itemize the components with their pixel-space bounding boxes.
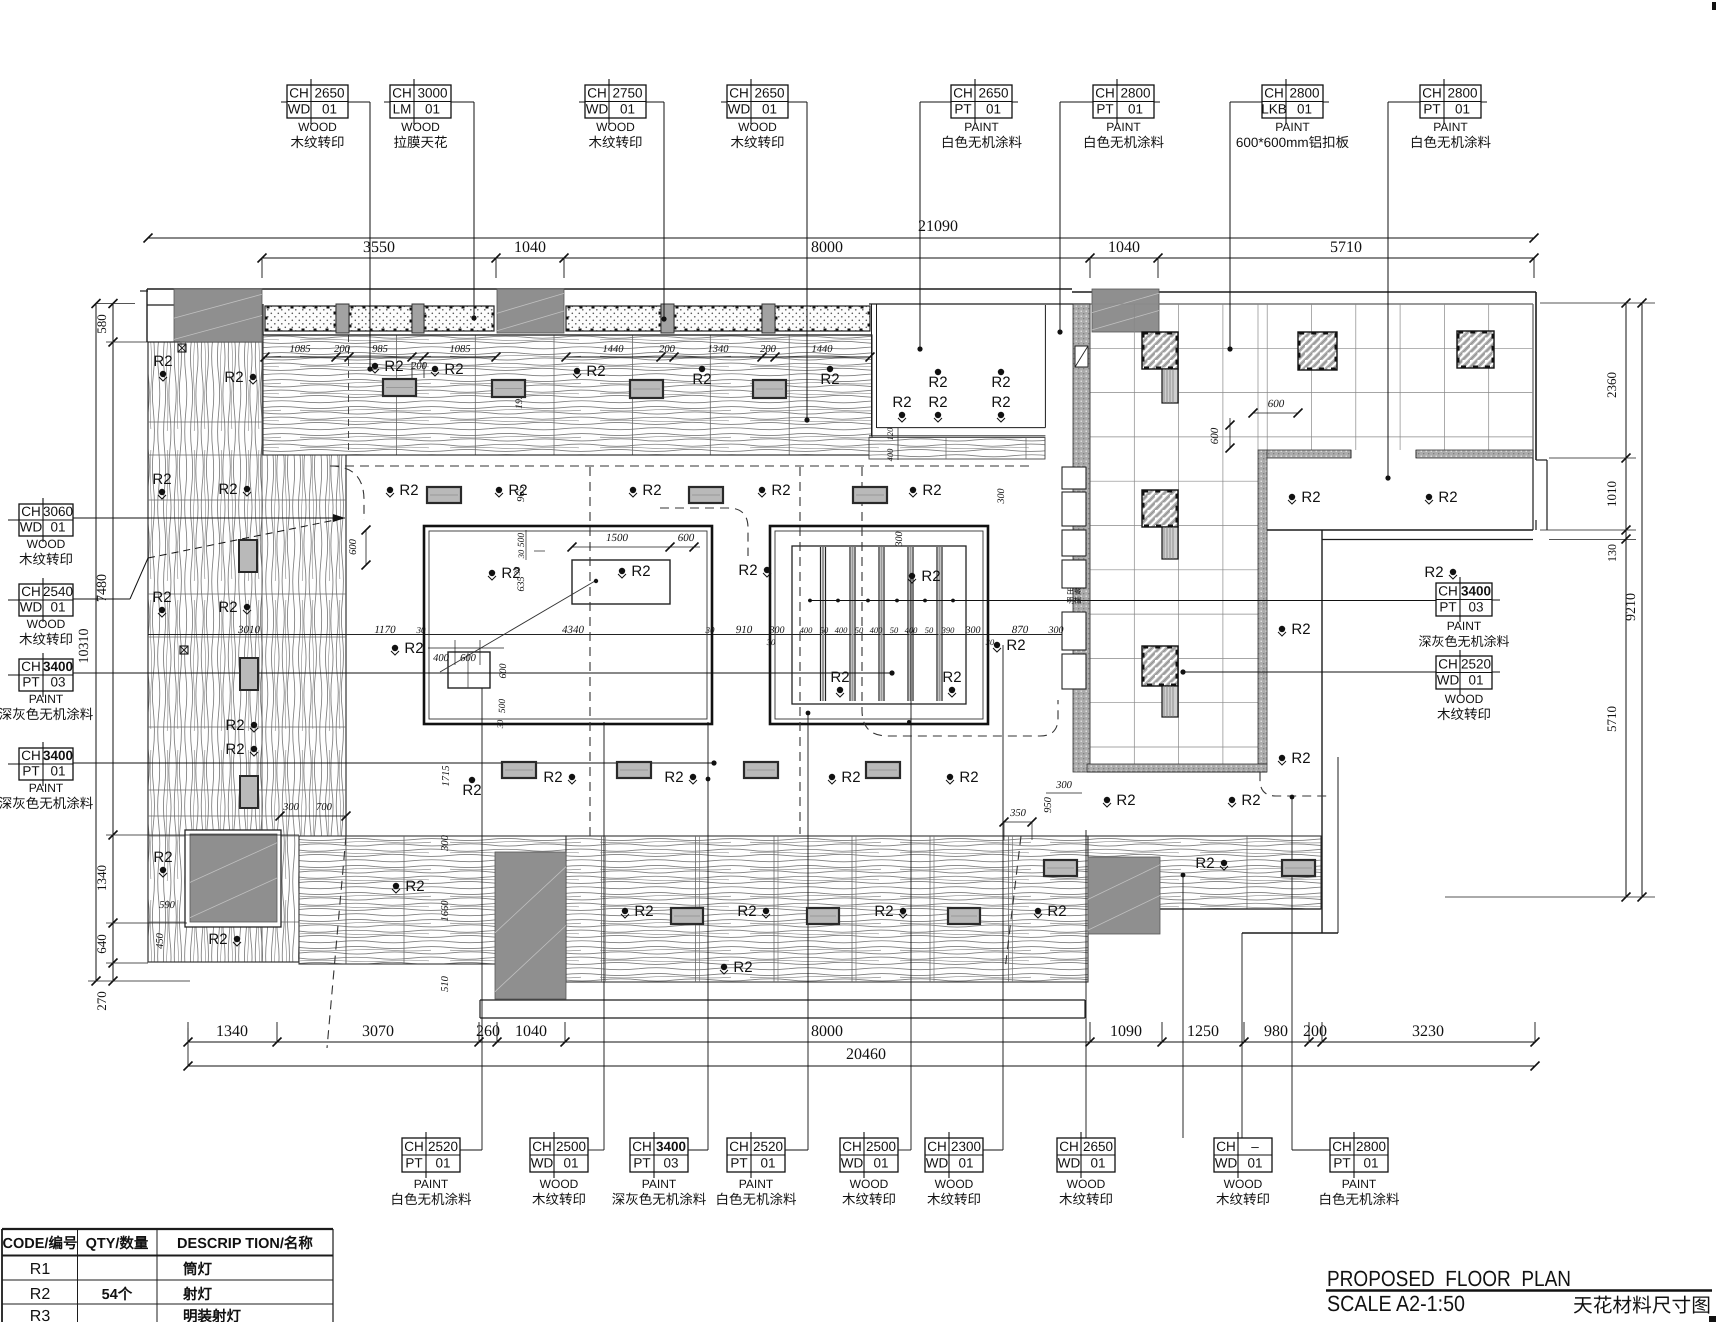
svg-text:木纹转印: 木纹转印 (589, 135, 643, 150)
svg-text:PT: PT (22, 675, 39, 690)
svg-text:600: 600 (678, 532, 695, 544)
svg-text:WOOD: WOOD (1224, 1177, 1263, 1191)
svg-text:3550: 3550 (363, 239, 395, 256)
svg-text:1170: 1170 (374, 624, 396, 636)
svg-text:600*600mm铝扣板: 600*600mm铝扣板 (1236, 135, 1350, 150)
svg-text:R2: R2 (1116, 792, 1135, 809)
svg-text:R2: R2 (928, 374, 947, 391)
svg-text:2650: 2650 (754, 86, 784, 101)
svg-text:1250: 1250 (1187, 1023, 1219, 1040)
svg-text:R2: R2 (991, 374, 1010, 391)
svg-text:120: 120 (885, 427, 895, 441)
svg-text:R2: R2 (771, 482, 790, 499)
svg-text:2500: 2500 (866, 1139, 896, 1154)
svg-text:CH: CH (1332, 1139, 1352, 1154)
svg-text:2650: 2650 (978, 86, 1008, 101)
svg-text:WD: WD (20, 600, 43, 615)
svg-text:CH: CH (927, 1139, 947, 1154)
svg-text:1085: 1085 (450, 344, 471, 355)
svg-text:2500: 2500 (556, 1139, 586, 1154)
svg-text:木纹转印: 木纹转印 (842, 1192, 896, 1207)
svg-text:R2: R2 (892, 394, 911, 411)
svg-text:WD: WD (926, 1156, 949, 1171)
svg-text:白色无机涂料: 白色无机涂料 (391, 1192, 472, 1207)
svg-text:PAINT: PAINT (964, 120, 999, 134)
svg-text:R2: R2 (1291, 621, 1310, 638)
svg-text:R2: R2 (1006, 637, 1025, 654)
svg-text:PT: PT (22, 764, 39, 779)
svg-text:260: 260 (476, 1023, 500, 1040)
svg-text:30: 30 (705, 625, 716, 635)
svg-text:03: 03 (50, 675, 65, 690)
svg-text:CH: CH (729, 1139, 749, 1154)
svg-text:WOOD: WOOD (850, 1177, 889, 1191)
svg-text:01: 01 (620, 102, 635, 117)
svg-text:R2: R2 (733, 959, 752, 976)
svg-text:PT: PT (1423, 102, 1440, 117)
svg-text:01: 01 (873, 1156, 888, 1171)
svg-text:R2: R2 (384, 358, 403, 375)
svg-text:木纹转印: 木纹转印 (1059, 1192, 1113, 1207)
svg-text:5710: 5710 (1604, 706, 1619, 732)
svg-text:CH: CH (532, 1139, 552, 1154)
svg-text:CODE/编号: CODE/编号 (3, 1235, 78, 1252)
svg-text:PT: PT (1333, 1156, 1350, 1171)
svg-text:WOOD: WOOD (738, 120, 777, 134)
svg-text:R2: R2 (153, 353, 172, 370)
svg-text:580: 580 (94, 314, 109, 334)
svg-text:WD: WD (531, 1156, 554, 1171)
svg-text:PAINT: PAINT (414, 1177, 449, 1191)
svg-text:PT: PT (405, 1156, 422, 1171)
svg-text:2800: 2800 (1120, 86, 1150, 101)
svg-text:WOOD: WOOD (596, 120, 635, 134)
svg-text:1500: 1500 (606, 532, 629, 544)
svg-text:WD: WD (841, 1156, 864, 1171)
svg-text:射灯: 射灯 (182, 1286, 212, 1303)
svg-text:1010: 1010 (1604, 481, 1619, 507)
svg-text:深灰色无机涂料: 深灰色无机涂料 (612, 1192, 707, 1207)
svg-text:CH: CH (953, 86, 973, 101)
svg-text:–: – (1251, 1139, 1259, 1154)
svg-text:1040: 1040 (514, 239, 546, 256)
svg-text:350: 350 (1009, 808, 1027, 819)
svg-text:R2: R2 (820, 371, 839, 388)
svg-text:2800: 2800 (1447, 86, 1477, 101)
svg-text:PROPOSED FLOOR PLAN: PROPOSED FLOOR PLAN (1327, 1266, 1571, 1291)
svg-text:R2: R2 (152, 589, 171, 606)
svg-text:PAINT: PAINT (1433, 120, 1468, 134)
svg-text:50: 50 (855, 625, 864, 635)
svg-text:985: 985 (372, 344, 388, 355)
svg-text:CH: CH (632, 1139, 652, 1154)
svg-text:200: 200 (760, 344, 777, 355)
svg-text:600: 600 (1209, 427, 1221, 444)
svg-text:30: 30 (495, 719, 505, 729)
svg-text:CH: CH (729, 86, 749, 101)
svg-text:WOOD: WOOD (1445, 692, 1484, 706)
svg-text:R2: R2 (225, 741, 244, 758)
svg-text:640: 640 (94, 934, 109, 954)
svg-text:400: 400 (433, 653, 450, 664)
svg-text:R2: R2 (1301, 489, 1320, 506)
svg-text:R2: R2 (928, 394, 947, 411)
svg-text:R2: R2 (959, 769, 978, 786)
svg-text:CH: CH (392, 86, 412, 101)
svg-text:200: 200 (659, 344, 676, 355)
svg-text:300: 300 (965, 625, 981, 636)
svg-text:600: 600 (348, 538, 359, 555)
svg-text:R2: R2 (1047, 903, 1066, 920)
svg-text:01: 01 (435, 1156, 450, 1171)
svg-text:R2: R2 (225, 717, 244, 734)
svg-text:SCALE A2-1:50: SCALE A2-1:50 (1327, 1291, 1465, 1316)
svg-text:DESCRIP TION/名称: DESCRIP TION/名称 (177, 1235, 313, 1252)
svg-text:4340: 4340 (562, 624, 585, 636)
svg-text:R2: R2 (208, 931, 227, 948)
svg-text:200: 200 (411, 361, 428, 372)
svg-text:R2: R2 (922, 482, 941, 499)
svg-text:CH: CH (404, 1139, 424, 1154)
svg-text:400: 400 (835, 625, 849, 635)
svg-text:R3: R3 (30, 1308, 51, 1322)
svg-text:木纹转印: 木纹转印 (1216, 1192, 1270, 1207)
svg-text:870: 870 (1012, 624, 1029, 636)
svg-text:01: 01 (958, 1156, 973, 1171)
svg-text:1040: 1040 (1108, 239, 1140, 256)
svg-text:R2: R2 (874, 903, 893, 920)
svg-text:PT: PT (1096, 102, 1113, 117)
svg-text:白色无机涂料: 白色无机涂料 (1083, 135, 1164, 150)
svg-text:CH: CH (21, 748, 41, 763)
svg-text:1715: 1715 (441, 766, 452, 787)
svg-text:400: 400 (870, 625, 884, 635)
svg-text:木纹转印: 木纹转印 (731, 135, 785, 150)
svg-text:30: 30 (516, 549, 526, 559)
svg-text:7480: 7480 (95, 574, 110, 602)
svg-text:600: 600 (1268, 398, 1285, 410)
svg-text:CH: CH (21, 659, 41, 674)
svg-text:CH: CH (842, 1139, 862, 1154)
svg-text:1340: 1340 (94, 865, 109, 891)
svg-text:2520: 2520 (1461, 657, 1491, 672)
svg-text:01: 01 (1128, 102, 1143, 117)
svg-text:CH: CH (21, 584, 41, 599)
svg-text:30: 30 (416, 625, 427, 635)
svg-text:木纹转印: 木纹转印 (19, 632, 73, 647)
svg-text:50: 50 (820, 625, 829, 635)
svg-text:300: 300 (769, 625, 785, 636)
svg-text:WOOD: WOOD (298, 120, 337, 134)
svg-text:8000: 8000 (811, 239, 843, 256)
svg-text:天花材料尺寸图: 天花材料尺寸图 (1573, 1295, 1711, 1317)
svg-text:3400: 3400 (1461, 584, 1491, 599)
svg-text:深灰色无机涂料: 深灰色无机涂料 (0, 707, 94, 722)
svg-text:CH: CH (21, 504, 41, 519)
svg-text:21090: 21090 (918, 218, 958, 235)
svg-text:R2: R2 (921, 568, 940, 585)
svg-text:R1: R1 (30, 1261, 51, 1278)
svg-text:R2: R2 (631, 563, 650, 580)
svg-text:WD: WD (1437, 673, 1460, 688)
svg-text:130: 130 (1605, 544, 1619, 562)
svg-text:01: 01 (322, 102, 337, 117)
svg-text:2540: 2540 (43, 584, 73, 599)
svg-text:390: 390 (941, 625, 956, 635)
svg-text:木纹转印: 木纹转印 (1437, 707, 1491, 722)
svg-text:600: 600 (460, 653, 477, 664)
svg-text:CH: CH (1438, 584, 1458, 599)
svg-text:400: 400 (800, 625, 814, 635)
svg-text:LM: LM (393, 102, 412, 117)
svg-text:R2: R2 (737, 903, 756, 920)
svg-text:白色无机涂料: 白色无机涂料 (941, 135, 1022, 150)
svg-text:白色无机涂料: 白色无机涂料 (1410, 135, 1491, 150)
svg-text:2300: 2300 (951, 1139, 981, 1154)
svg-text:CH: CH (1059, 1139, 1079, 1154)
svg-text:PT: PT (1439, 600, 1456, 615)
svg-text:WOOD: WOOD (540, 1177, 579, 1191)
svg-text:1340: 1340 (216, 1023, 248, 1040)
svg-text:2520: 2520 (753, 1139, 783, 1154)
svg-text:03: 03 (663, 1156, 678, 1171)
svg-text:R2: R2 (224, 369, 243, 386)
svg-text:R2: R2 (543, 769, 562, 786)
svg-text:1660: 1660 (440, 900, 451, 922)
svg-text:白色无机涂料: 白色无机涂料 (1319, 1192, 1400, 1207)
svg-text:500: 500 (517, 533, 527, 548)
svg-text:WOOD: WOOD (1067, 1177, 1106, 1191)
svg-text:WD: WD (288, 102, 311, 117)
svg-text:9210: 9210 (1624, 593, 1639, 621)
svg-text:PAINT: PAINT (1447, 619, 1482, 633)
svg-text:30: 30 (985, 637, 995, 647)
svg-text:200: 200 (334, 344, 351, 355)
svg-text:1440: 1440 (812, 344, 834, 355)
svg-text:木纹转印: 木纹转印 (532, 1192, 586, 1207)
svg-text:CH: CH (289, 86, 309, 101)
svg-text:PAINT: PAINT (29, 781, 64, 795)
svg-text:R2: R2 (1195, 855, 1214, 872)
svg-text:R2: R2 (1424, 564, 1443, 581)
svg-text:590: 590 (159, 900, 176, 911)
svg-text:01: 01 (1247, 1156, 1262, 1171)
svg-text:270: 270 (94, 991, 109, 1011)
svg-text:1340: 1340 (708, 344, 730, 355)
svg-text:20460: 20460 (846, 1046, 886, 1063)
svg-text:3000: 3000 (417, 86, 447, 101)
svg-text:R2: R2 (218, 599, 237, 616)
svg-text:R2: R2 (586, 363, 605, 380)
svg-text:R2: R2 (501, 565, 520, 582)
svg-text:R2: R2 (634, 903, 653, 920)
svg-text:出餐: 出餐 (1067, 587, 1083, 596)
svg-text:R2: R2 (1241, 792, 1260, 809)
svg-text:500: 500 (498, 699, 508, 714)
svg-text:1090: 1090 (1110, 1023, 1142, 1040)
svg-text:54个: 54个 (102, 1286, 133, 1303)
svg-text:01: 01 (1363, 1156, 1378, 1171)
svg-text:3230: 3230 (1412, 1023, 1444, 1040)
svg-text:01: 01 (563, 1156, 578, 1171)
svg-text:WD: WD (586, 102, 609, 117)
svg-text:R2: R2 (664, 769, 683, 786)
svg-text:R2: R2 (404, 640, 423, 657)
svg-text:PAINT: PAINT (739, 1177, 774, 1191)
svg-text:2520: 2520 (428, 1139, 458, 1154)
svg-text:200: 200 (1303, 1023, 1327, 1040)
svg-text:300: 300 (282, 802, 300, 813)
svg-text:PAINT: PAINT (642, 1177, 677, 1191)
svg-text:CH: CH (1438, 657, 1458, 672)
svg-text:WD: WD (20, 520, 43, 535)
svg-text:01: 01 (1455, 102, 1470, 117)
svg-text:明装射灯: 明装射灯 (183, 1308, 241, 1322)
svg-text:1440: 1440 (603, 344, 625, 355)
svg-text:R2: R2 (153, 849, 172, 866)
svg-text:CH: CH (1095, 86, 1115, 101)
svg-text:R2: R2 (399, 482, 418, 499)
svg-text:CH: CH (587, 86, 607, 101)
svg-text:3400: 3400 (43, 659, 73, 674)
svg-text:300: 300 (1055, 780, 1073, 791)
svg-text:R2: R2 (1438, 489, 1457, 506)
svg-text:30: 30 (766, 637, 776, 647)
svg-text:8000: 8000 (811, 1023, 843, 1040)
svg-text:3070: 3070 (362, 1023, 394, 1040)
svg-text:300: 300 (996, 489, 1007, 505)
svg-text:3060: 3060 (43, 504, 73, 519)
svg-text:R2: R2 (405, 878, 424, 895)
svg-text:CH: CH (1264, 86, 1284, 101)
svg-text:木纹转印: 木纹转印 (927, 1192, 981, 1207)
svg-text:50: 50 (925, 625, 934, 635)
svg-text:R2: R2 (508, 482, 527, 499)
svg-text:PAINT: PAINT (1106, 120, 1141, 134)
svg-text:03: 03 (1468, 600, 1483, 615)
svg-text:2800: 2800 (1356, 1139, 1386, 1154)
svg-text:CH: CH (1216, 1139, 1236, 1154)
svg-text:01: 01 (760, 1156, 775, 1171)
svg-text:2360: 2360 (1604, 372, 1619, 398)
svg-text:01: 01 (1297, 102, 1312, 117)
svg-text:5710: 5710 (1330, 239, 1362, 256)
svg-text:R2: R2 (942, 669, 961, 686)
svg-text:WD: WD (1215, 1156, 1238, 1171)
svg-text:木纹转印: 木纹转印 (291, 135, 345, 150)
svg-text:R2: R2 (830, 669, 849, 686)
svg-text:01: 01 (50, 520, 65, 535)
svg-text:950: 950 (1043, 796, 1054, 813)
svg-text:PT: PT (633, 1156, 650, 1171)
svg-text:600: 600 (498, 664, 509, 679)
svg-text:R2: R2 (152, 471, 171, 488)
svg-text:R2: R2 (1291, 750, 1310, 767)
svg-text:R2: R2 (991, 394, 1010, 411)
svg-text:R2: R2 (841, 769, 860, 786)
svg-text:300: 300 (894, 532, 905, 548)
svg-text:R2: R2 (444, 361, 463, 378)
svg-text:PAINT: PAINT (1342, 1177, 1377, 1191)
svg-text:R2: R2 (462, 782, 481, 799)
svg-text:01: 01 (425, 102, 440, 117)
svg-text:木纹转印: 木纹转印 (19, 552, 73, 567)
svg-text:2650: 2650 (1083, 1139, 1113, 1154)
svg-text:510: 510 (440, 975, 451, 992)
svg-text:980: 980 (1264, 1023, 1288, 1040)
svg-text:QTY/数量: QTY/数量 (86, 1235, 149, 1252)
svg-text:1085: 1085 (290, 344, 311, 355)
svg-text:筒灯: 筒灯 (183, 1261, 212, 1278)
svg-text:PT: PT (730, 1156, 747, 1171)
svg-text:2750: 2750 (612, 86, 642, 101)
svg-text:3010: 3010 (237, 624, 261, 636)
svg-text:R2: R2 (30, 1286, 51, 1303)
svg-text:PAINT: PAINT (29, 692, 64, 706)
svg-text:910: 910 (736, 624, 753, 636)
svg-text:01: 01 (1090, 1156, 1105, 1171)
svg-text:PT: PT (954, 102, 971, 117)
svg-text:WOOD: WOOD (935, 1177, 974, 1191)
svg-text:PAINT: PAINT (1275, 120, 1310, 134)
svg-text:01: 01 (50, 764, 65, 779)
svg-text:50: 50 (890, 625, 899, 635)
svg-text:CH: CH (1422, 86, 1442, 101)
svg-text:01: 01 (762, 102, 777, 117)
svg-text:01: 01 (50, 600, 65, 615)
svg-text:WOOD: WOOD (27, 537, 66, 551)
svg-text:WOOD: WOOD (401, 120, 440, 134)
svg-text:300: 300 (440, 834, 451, 852)
svg-text:450: 450 (155, 932, 166, 949)
svg-text:拉膜天花: 拉膜天花 (394, 135, 448, 150)
svg-text:WOOD: WOOD (27, 617, 66, 631)
svg-text:01: 01 (986, 102, 1001, 117)
svg-text:R2: R2 (692, 371, 711, 388)
svg-text:400: 400 (885, 448, 895, 462)
svg-text:10310: 10310 (77, 629, 92, 664)
svg-text:3400: 3400 (43, 748, 73, 763)
svg-text:R2: R2 (642, 482, 661, 499)
svg-text:01: 01 (1468, 673, 1483, 688)
svg-text:WD: WD (728, 102, 751, 117)
svg-text:2650: 2650 (314, 86, 344, 101)
svg-text:R2: R2 (218, 481, 237, 498)
svg-text:R2: R2 (738, 562, 757, 579)
svg-text:700: 700 (316, 802, 333, 813)
svg-text:300: 300 (1048, 625, 1064, 636)
svg-text:WD: WD (1058, 1156, 1081, 1171)
svg-text:2800: 2800 (1289, 86, 1319, 101)
svg-text:白色无机涂料: 白色无机涂料 (716, 1192, 797, 1207)
svg-text:深灰色无机涂料: 深灰色无机涂料 (0, 796, 94, 811)
svg-text:LKB: LKB (1261, 102, 1287, 117)
svg-text:深灰色无机涂料: 深灰色无机涂料 (1418, 634, 1509, 649)
svg-text:3400: 3400 (656, 1139, 686, 1154)
svg-text:1040: 1040 (515, 1023, 547, 1040)
